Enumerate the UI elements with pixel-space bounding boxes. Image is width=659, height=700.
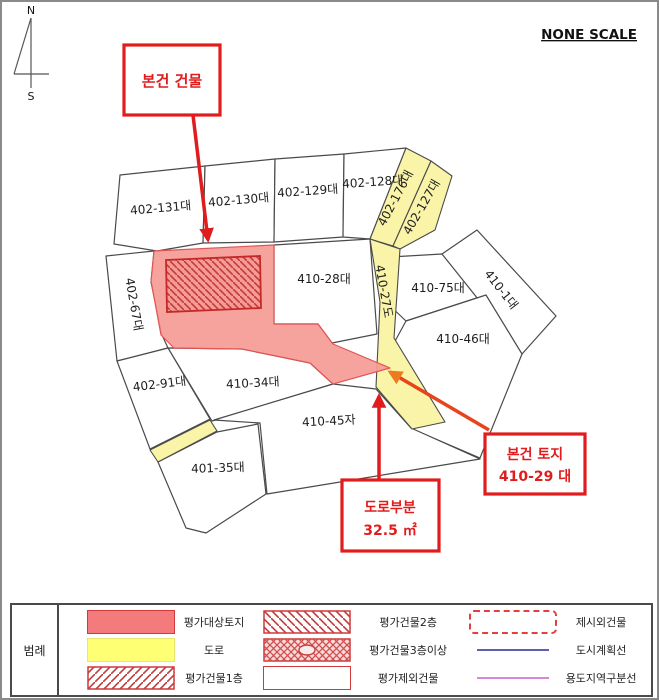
legend-item-excluded-building: 평가제외건물 xyxy=(263,665,465,692)
parcel-label: 410-28대 xyxy=(297,272,351,286)
parcel-label: 410-34대 xyxy=(226,375,280,392)
parcel-label: 410-46대 xyxy=(436,332,490,346)
legend-item-city-plan-line: 도시계획선 xyxy=(469,637,645,664)
legend-column-2: 평가건물2층 평가건물3층이상 xyxy=(253,608,465,692)
dashed-box-swatch xyxy=(469,610,557,634)
appraisal-map-page: N S NONE SCALE xyxy=(0,0,659,700)
legend-item-subject-land: 평가대상토지 xyxy=(87,609,253,636)
compass-north-label: N xyxy=(27,4,35,17)
legend-item-label: 제시외건물 xyxy=(557,614,645,630)
parcel-label: 410-45자 xyxy=(302,413,356,430)
hatch-forward-swatch xyxy=(87,666,175,690)
legend-item-label: 도로 xyxy=(175,642,253,658)
building-callout-text: 본건 건물 xyxy=(142,72,203,90)
legend-column-3: 제시외건물 도시계획선 용도지역구분선 xyxy=(465,608,645,692)
legend-item-label: 평가건물2층 xyxy=(351,614,465,630)
land-callout-line1: 본건 토지 xyxy=(507,446,563,463)
land-callout-line2: 410-29 대 xyxy=(499,469,571,485)
parcel-label: 410-75대 xyxy=(411,281,465,295)
legend-item-label: 평가건물3층이상 xyxy=(351,642,465,658)
hatch-back-swatch xyxy=(263,610,351,634)
road-portion-callout-line2: 32.5 ㎡ xyxy=(363,522,416,539)
land-callout-box xyxy=(485,434,585,494)
legend-item-zoning-line: 용도지역구분선 xyxy=(469,665,645,692)
white-box-swatch xyxy=(263,666,351,690)
legend-item-label: 평가건물1층 xyxy=(175,670,253,686)
scale-note: NONE SCALE xyxy=(541,27,637,43)
legend-item-label: 평가대상토지 xyxy=(175,614,253,630)
legend-item-building-2f: 평가건물2층 xyxy=(263,609,465,636)
compass-south-label: S xyxy=(28,90,35,103)
zoning-line-swatch xyxy=(469,666,557,690)
legend-grid: 평가대상토지 도로 평가건물1층 xyxy=(59,605,651,695)
road-portion-callout-line1: 도로부분 xyxy=(364,500,416,516)
legend-item-unlisted-building: 제시외건물 xyxy=(469,609,645,636)
crosshatch-ellipse-swatch xyxy=(263,638,351,662)
legend: 범례 평가대상토지 도로 xyxy=(10,603,653,697)
city-plan-line-swatch xyxy=(469,638,557,662)
legend-item-building-1f: 평가건물1층 xyxy=(87,665,253,692)
legend-item-road: 도로 xyxy=(87,637,253,664)
parcel-label: 401-35대 xyxy=(191,460,245,476)
legend-item-building-3f: 평가건물3층이상 xyxy=(263,637,465,664)
road-swatch xyxy=(87,638,175,662)
map-svg: N S NONE SCALE xyxy=(2,2,659,602)
legend-item-label: 용도지역구분선 xyxy=(557,670,645,686)
compass-rose xyxy=(14,18,49,88)
legend-title: 범례 xyxy=(12,605,59,695)
legend-item-label: 도시계획선 xyxy=(557,642,645,658)
legend-column-1: 평가대상토지 도로 평가건물1층 xyxy=(59,608,253,692)
legend-item-label: 평가제외건물 xyxy=(351,670,465,686)
subject-building-shape xyxy=(166,256,261,312)
subject-land-swatch xyxy=(87,610,175,634)
